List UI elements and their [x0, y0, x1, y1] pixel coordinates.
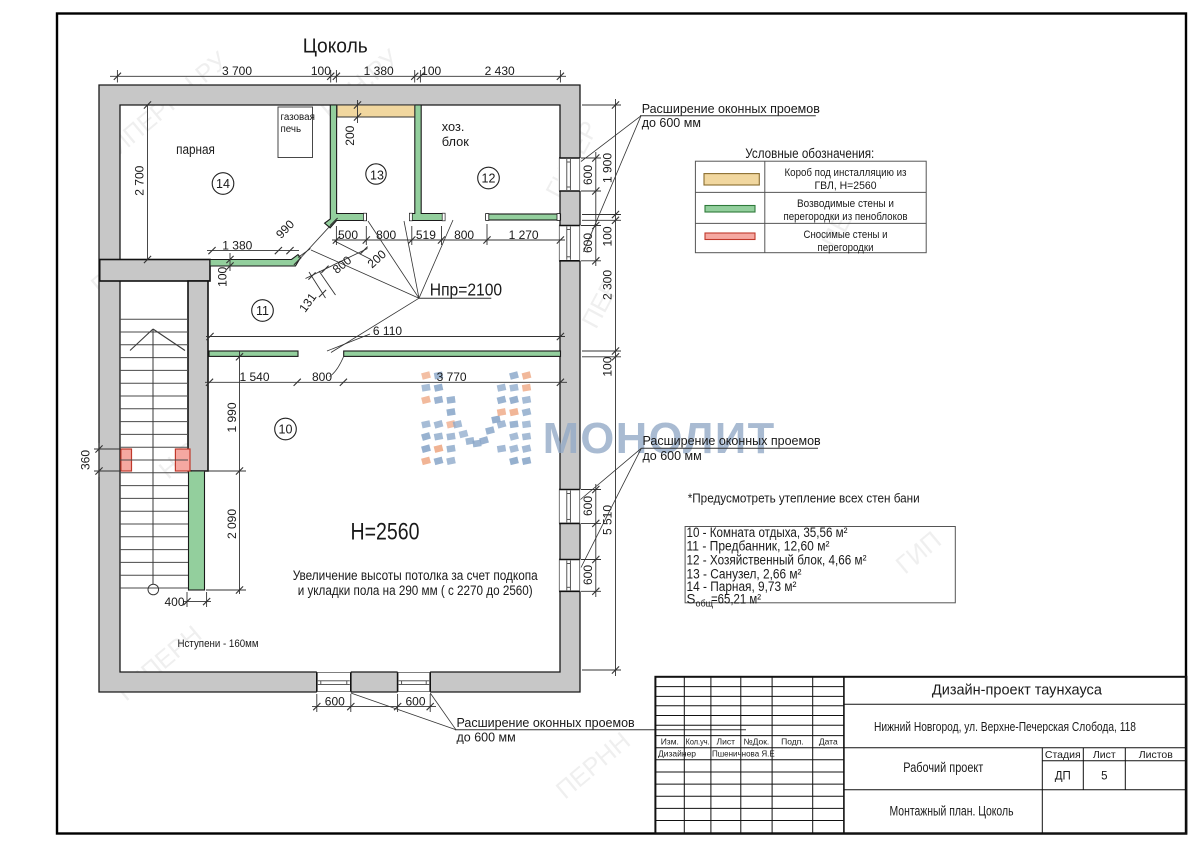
svg-text:*Предусмотреть утепление всех: *Предусмотреть утепление всех стен бани: [688, 491, 920, 506]
svg-text:500: 500: [338, 228, 358, 242]
svg-text:2 300: 2 300: [601, 270, 615, 300]
svg-text:Условные обозначения:: Условные обозначения:: [745, 146, 874, 161]
svg-text:парная: парная: [176, 142, 215, 157]
svg-text:1 900: 1 900: [601, 153, 615, 183]
svg-text:1 270: 1 270: [509, 228, 539, 242]
svg-text:Монтажный план. Цоколь: Монтажный план. Цоколь: [890, 804, 1014, 819]
svg-text:№Док.: №Док.: [744, 737, 770, 747]
svg-text:600: 600: [581, 496, 595, 516]
svg-text:=65,21 м²: =65,21 м²: [711, 592, 761, 607]
svg-text:Возводимые стены и: Возводимые стены и: [797, 198, 894, 210]
svg-text:печь: печь: [281, 124, 302, 135]
svg-text:2 700: 2 700: [133, 165, 147, 195]
svg-text:и укладки пола на 290 мм ( с 2: и укладки пола на 290 мм ( с 2270 до 256…: [298, 583, 533, 598]
svg-text:519: 519: [416, 228, 436, 242]
svg-text:блок: блок: [442, 134, 469, 149]
svg-text:200: 200: [365, 247, 389, 271]
svg-text:до 600 мм: до 600 мм: [457, 731, 516, 745]
svg-text:5: 5: [1101, 771, 1107, 783]
svg-text:1 380: 1 380: [222, 238, 252, 252]
svg-text:ПЕРНН: ПЕРНН: [551, 727, 636, 805]
svg-text:Кол.уч.: Кол.уч.: [686, 737, 710, 747]
svg-text:Дизайнер: Дизайнер: [658, 749, 696, 759]
svg-text:2 090: 2 090: [225, 509, 239, 539]
svg-text:5 510: 5 510: [601, 505, 615, 535]
svg-text:Нступени - 160мм: Нступени - 160мм: [178, 638, 259, 650]
svg-text:400: 400: [164, 595, 184, 609]
svg-text:Листов: Листов: [1139, 749, 1174, 761]
svg-text:1 540: 1 540: [239, 370, 269, 384]
svg-text:12 - Хозяйственный блок, 4,66: 12 - Хозяйственный блок, 4,66 м²: [687, 552, 867, 567]
svg-text:Дизайн-проект таунхауса: Дизайн-проект таунхауса: [932, 682, 1103, 699]
svg-text:2 430: 2 430: [485, 64, 515, 78]
svg-text:хоз.: хоз.: [442, 119, 465, 134]
svg-text:360: 360: [79, 450, 93, 470]
svg-text:перегородки из пеноблоков: перегородки из пеноблоков: [784, 211, 908, 223]
svg-text:Расширение оконных проемов: Расширение оконных проемов: [642, 102, 821, 116]
svg-text:600: 600: [581, 165, 595, 185]
svg-text:Цоколь: Цоколь: [303, 36, 368, 58]
svg-text:3 770: 3 770: [437, 370, 467, 384]
svg-text:131: 131: [296, 290, 319, 315]
svg-text:990: 990: [273, 217, 297, 241]
svg-text:Короб под инсталляцию из: Короб под инсталляцию из: [785, 167, 907, 179]
svg-text:14: 14: [216, 177, 230, 191]
svg-text:перегородки: перегородки: [818, 242, 874, 254]
svg-text:Увеличение высоты потолка за с: Увеличение высоты потолка за счет подкоп…: [293, 568, 538, 583]
svg-text:1 990: 1 990: [225, 402, 239, 432]
svg-text:ДП: ДП: [1055, 771, 1071, 783]
svg-text:1 380: 1 380: [364, 64, 394, 78]
svg-text:ГИПЕРН: ГИПЕРН: [112, 620, 207, 706]
svg-text:Дата: Дата: [819, 737, 838, 747]
svg-text:Стадия: Стадия: [1045, 749, 1081, 761]
svg-text:10: 10: [279, 422, 293, 436]
svg-text:100: 100: [601, 226, 615, 246]
svg-text:100: 100: [216, 266, 230, 286]
svg-text:11: 11: [256, 304, 269, 318]
svg-text:13: 13: [370, 168, 384, 182]
svg-text:Нпр=2100: Нпр=2100: [430, 279, 502, 299]
svg-text:Н=2560: Н=2560: [351, 518, 420, 545]
svg-text:Пшеничнова Я.Е: Пшеничнова Я.Е: [712, 750, 775, 759]
svg-text:200: 200: [343, 125, 357, 145]
svg-text:600: 600: [581, 233, 595, 253]
svg-text:600: 600: [581, 565, 595, 585]
svg-text:800: 800: [454, 228, 474, 242]
svg-text:Лист: Лист: [1093, 749, 1116, 761]
svg-text:100: 100: [421, 64, 441, 78]
svg-text:12: 12: [482, 171, 496, 185]
svg-text:Расширение оконных проемов: Расширение оконных проемов: [457, 716, 636, 730]
svg-text:Изм.: Изм.: [661, 737, 679, 747]
svg-text:6 110: 6 110: [373, 324, 402, 338]
svg-text:S: S: [687, 592, 696, 607]
svg-text:800: 800: [312, 370, 332, 384]
svg-text:100: 100: [601, 356, 615, 376]
svg-text:Подп.: Подп.: [781, 737, 804, 747]
svg-text:ГИП: ГИП: [891, 526, 947, 579]
svg-text:до 600 мм: до 600 мм: [643, 449, 702, 463]
svg-text:Расширение оконных проемов: Расширение оконных проемов: [643, 434, 822, 448]
svg-text:800: 800: [376, 228, 396, 242]
svg-text:600: 600: [405, 694, 425, 708]
svg-text:до 600 мм: до 600 мм: [642, 116, 701, 130]
svg-text:3 700: 3 700: [222, 64, 252, 78]
svg-text:600: 600: [325, 694, 345, 708]
svg-text:Лист: Лист: [717, 737, 736, 747]
svg-text:Рабочий проект: Рабочий проект: [903, 760, 983, 775]
svg-text:11 - Предбанник, 12,60 м²: 11 - Предбанник, 12,60 м²: [687, 538, 830, 553]
svg-text:Нижний Новгород, ул. Верхне-Пе: Нижний Новгород, ул. Верхне-Печерская Сл…: [874, 719, 1136, 734]
svg-text:100: 100: [311, 64, 331, 78]
svg-text:Сносимые стены и: Сносимые стены и: [804, 229, 888, 241]
svg-text:газовая: газовая: [281, 112, 315, 123]
svg-text:ГВЛ, Н=2560: ГВЛ, Н=2560: [815, 180, 877, 192]
